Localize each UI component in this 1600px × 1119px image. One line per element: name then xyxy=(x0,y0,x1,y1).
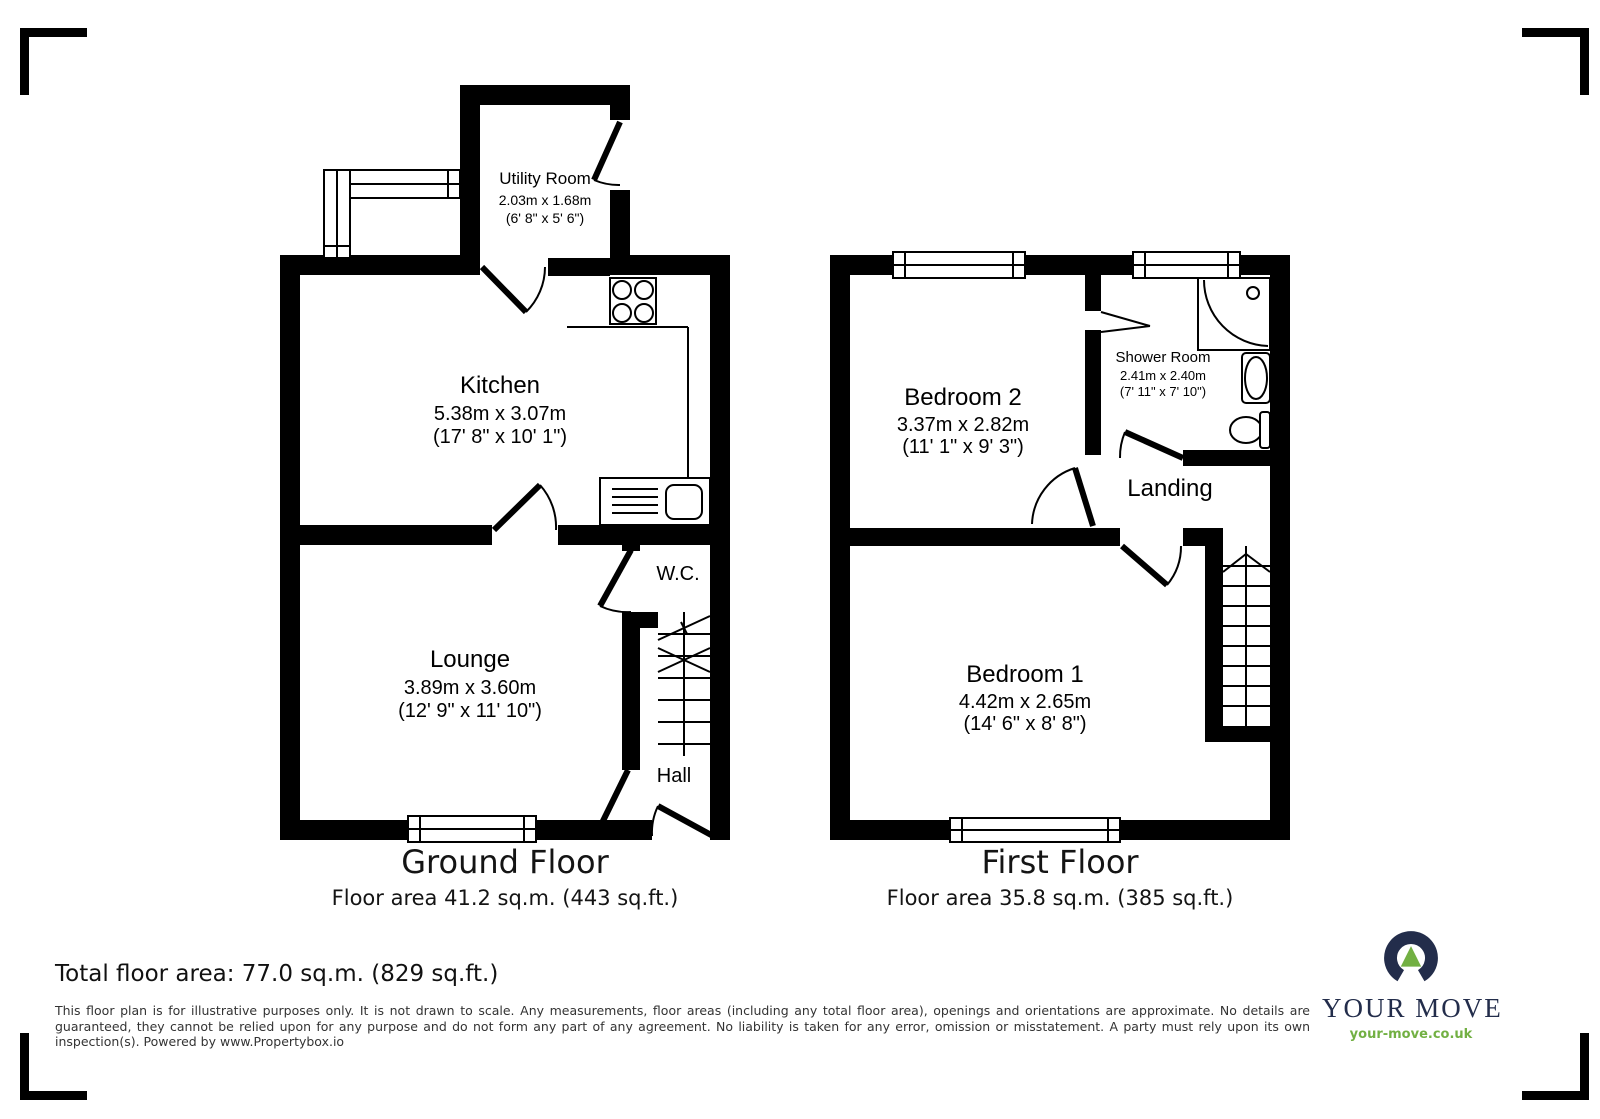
wc-label: W.C. xyxy=(656,563,699,585)
first-floor-area: Floor area 35.8 sq.m. (385 sq.ft.) xyxy=(830,886,1290,910)
stove-icon xyxy=(610,278,656,324)
shower-room-imperial: (7' 11" x 7' 10") xyxy=(1120,384,1206,399)
utility-room-metric: 2.03m x 1.68m xyxy=(499,192,592,208)
first-floor-stairs xyxy=(1223,546,1270,726)
lounge-metric: 3.89m x 3.60m xyxy=(404,677,536,699)
ground-floor-area: Floor area 41.2 sq.m. (443 sq.ft.) xyxy=(280,886,730,910)
hall-label: Hall xyxy=(657,765,691,787)
kitchen-label: Kitchen xyxy=(460,372,540,399)
bedroom2-label: Bedroom 2 xyxy=(904,384,1021,411)
sink-icon xyxy=(600,478,710,525)
total-floor-area: Total floor area: 77.0 sq.m. (829 sq.ft.… xyxy=(55,961,498,987)
first-floor-windows xyxy=(893,252,1240,842)
lounge-imperial: (12' 9" x 11' 10") xyxy=(398,700,542,722)
bedroom1-metric: 4.42m x 2.65m xyxy=(959,691,1091,713)
lounge-label: Lounge xyxy=(430,646,510,673)
shower-room-label: Shower Room xyxy=(1115,349,1210,366)
basin-icon xyxy=(1242,353,1270,403)
corner-mark-bottom-right xyxy=(1522,1033,1589,1100)
ground-floor-stairs xyxy=(658,612,710,756)
ground-floor-title: Ground Floor xyxy=(280,843,730,881)
kitchen-imperial: (17' 8" x 10' 1") xyxy=(433,426,567,448)
bedroom1-label: Bedroom 1 xyxy=(966,661,1083,688)
first-floor-plan: Bedroom 2 3.37m x 2.82m (11' 1" x 9' 3")… xyxy=(830,252,1290,842)
floor-plan-page: Utility Room 2.03m x 1.68m (6' 8" x 5' 6… xyxy=(0,0,1600,1119)
first-floor-title: First Floor xyxy=(830,843,1290,881)
shower-room-metric: 2.41m x 2.40m xyxy=(1120,368,1206,383)
your-move-brand-text: YOUR MOVE xyxy=(1322,993,1500,1024)
shower-icon xyxy=(1198,278,1270,350)
utility-room-imperial: (6' 8" x 5' 6") xyxy=(506,210,584,226)
floor-plan-drawing: Utility Room 2.03m x 1.68m (6' 8" x 5' 6… xyxy=(0,0,1600,925)
bedroom2-metric: 3.37m x 2.82m xyxy=(897,414,1029,436)
kitchen-metric: 5.38m x 3.07m xyxy=(434,403,566,425)
utility-room-label: Utility Room xyxy=(499,169,591,188)
toilet-icon xyxy=(1230,412,1270,448)
kitchen-counter-line xyxy=(567,327,688,478)
your-move-website-text: your-move.co.uk xyxy=(1322,1027,1500,1042)
your-move-logo-icon xyxy=(1383,930,1439,986)
bedroom2-imperial: (11' 1" x 9' 3") xyxy=(902,436,1024,458)
bedroom1-imperial: (14' 6" x 8' 8") xyxy=(964,713,1087,735)
disclaimer-text: This floor plan is for illustrative purp… xyxy=(55,1003,1310,1050)
landing-label: Landing xyxy=(1127,475,1212,502)
your-move-logo: YOUR MOVE your-move.co.uk xyxy=(1322,930,1500,1042)
ground-floor-plan: Utility Room 2.03m x 1.68m (6' 8" x 5' 6… xyxy=(280,85,730,842)
